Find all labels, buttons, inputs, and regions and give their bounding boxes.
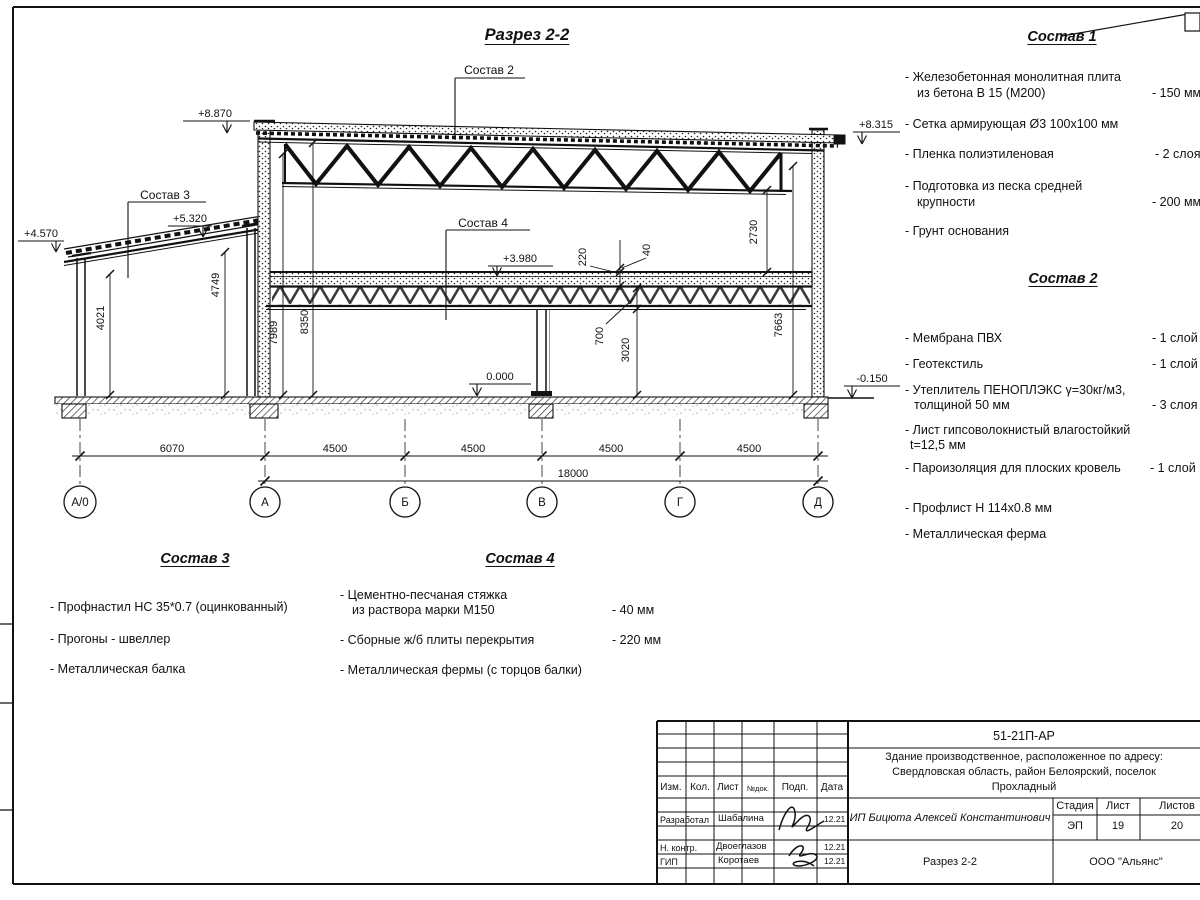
elevation-marks: +8.870 +8.315 +4.570 +5.320 +3.980 0.000… — [18, 108, 900, 398]
dim-7663: 7663 — [773, 313, 785, 337]
stage-value: ЭП — [1067, 820, 1083, 833]
sostav2-line: толщиной 50 мм — [914, 398, 1010, 412]
dim-4500-2: 4500 — [461, 443, 485, 455]
dim-2730: 2730 — [748, 220, 760, 244]
dim-700: 700 — [594, 327, 606, 345]
doc-code: 51-21П-АР — [993, 729, 1055, 743]
dim-7989: 7989 — [268, 321, 280, 345]
role-label: Разработал — [660, 815, 709, 825]
sheets-label: Листов — [1159, 800, 1195, 813]
main-building-structure — [254, 121, 874, 398]
sostav4-heading: Состав 4 — [485, 551, 554, 568]
sostav2-line: - Мембрана ПВХ — [905, 331, 1002, 345]
dim-220: 220 — [577, 248, 589, 266]
sostav3-heading: Состав 3 — [160, 551, 229, 568]
dim-4500-3: 4500 — [599, 443, 623, 455]
sostav1-line: крупности — [917, 195, 975, 209]
role-date: 12.21 — [824, 857, 845, 867]
sostav3-line: - Прогоны - швеллер — [50, 632, 170, 646]
sostav4-value: - 40 мм — [612, 603, 654, 617]
sostav2-line: - Утеплитель ПЕНОПЛЭКС γ=30кг/м3, — [905, 383, 1125, 397]
sostav3-line: - Профнастил НС 35*0.7 (оцинкованный) — [50, 600, 288, 614]
axis-bubbles: А/0 А Б В Г Д — [64, 486, 833, 518]
dim-4021: 4021 — [95, 306, 107, 330]
elev-annex-left: +4.570 — [24, 228, 58, 240]
axis-v: В — [538, 497, 546, 509]
drawing-linework: 6070 4500 4500 4500 4500 18000 4021 4749… — [0, 0, 1200, 900]
col-list: Лист — [717, 782, 739, 794]
dim-6070: 6070 — [160, 443, 184, 455]
sostav2-value: - 3 слоя — [1152, 398, 1197, 412]
dim-8350: 8350 — [299, 310, 311, 334]
col-izm: Изм. — [660, 782, 681, 794]
sheet-label: Лист — [1106, 800, 1130, 813]
sostav1-line: из бетона В 15 (М200) — [917, 86, 1045, 100]
view-name: Разрез 2-2 — [923, 856, 977, 869]
sostav4-line: из раствора марки М150 — [352, 603, 495, 617]
sostav1-line: - Подготовка из песка средней — [905, 179, 1082, 193]
elev-annex-right: +5.320 — [173, 213, 207, 225]
sostav4-line: - Сборные ж/б плиты перекрытия — [340, 633, 534, 647]
col-podp: Подп. — [782, 782, 809, 794]
elev-roof-right: +8.315 — [859, 119, 893, 131]
sostav1-value: - 150 мм — [1152, 86, 1200, 100]
axis-b: Б — [401, 497, 409, 509]
dim-3020: 3020 — [620, 338, 632, 362]
axis-a0: А/0 — [71, 497, 88, 509]
sostav2-line: - Металлическая ферма — [905, 527, 1046, 541]
sostav4-line: - Металлическая фермы (с торцов балки) — [340, 663, 582, 677]
stage-label: Стадия — [1056, 800, 1094, 813]
axis-a: А — [261, 497, 269, 509]
sostav4-line: - Цементно-песчаная стяжка — [340, 588, 507, 602]
axis-lines — [80, 419, 818, 487]
axis-d: Д — [814, 497, 822, 509]
dimension-texts: 6070 4500 4500 4500 4500 18000 4021 4749… — [95, 220, 785, 480]
designer-org: ИП Бицюта Алексей Константинович — [850, 812, 1051, 825]
sostav2-line: - Геотекстиль — [905, 357, 983, 371]
dim-40: 40 — [641, 244, 653, 256]
role-date: 12.21 — [824, 843, 845, 853]
object-line2: Свердловская область, район Белоярский, … — [892, 766, 1156, 779]
col-ndok: №док. — [747, 785, 769, 794]
sostav1-line: - Пленка полиэтиленовая — [905, 147, 1054, 161]
drawing-sheet: { "drawing": { "title": "Разрез 2-2", "l… — [0, 0, 1200, 900]
role-label: Н. контр. — [660, 843, 697, 853]
sostav2-line: - Лист гипсоволокнистый влагостойкий — [905, 423, 1130, 437]
sostav1-line: - Грунт основания — [905, 224, 1009, 238]
sostav2-value: - 1 слой — [1152, 357, 1198, 371]
role-name: Шабалина — [718, 814, 764, 825]
sheets-value: 20 — [1171, 820, 1183, 833]
sheet-value: 19 — [1112, 820, 1124, 833]
elev-floor0: 0.000 — [486, 371, 514, 383]
elev-grade: -0.150 — [856, 373, 887, 385]
annex-structure — [64, 215, 268, 396]
sostav1-value: - 2 слоя — [1155, 147, 1200, 161]
sostav2-value: - 1 слой — [1150, 461, 1196, 475]
sostav1-heading: Состав 1 — [1027, 29, 1096, 46]
dim-4749: 4749 — [210, 273, 222, 297]
role-name: Коротаев — [718, 856, 759, 867]
dim-4500-1: 4500 — [323, 443, 347, 455]
object-line3: Прохладный — [992, 781, 1057, 794]
dim-18000: 18000 — [558, 468, 589, 480]
sostav2-line: - Пароизоляция для плоских кровель — [905, 461, 1121, 475]
signature-2 — [789, 846, 817, 866]
sostav1-value: - 200 мм — [1152, 195, 1200, 209]
drawing-title: Разрез 2-2 — [485, 26, 570, 45]
sostav3-line: - Металлическая балка — [50, 662, 185, 676]
leader-sostav4: Состав 4 — [458, 216, 508, 230]
object-line1: Здание производственное, расположенное п… — [885, 751, 1163, 764]
col-kol: Кол. — [690, 782, 710, 794]
leader-sostav2: Состав 2 — [464, 63, 514, 77]
sostav2-heading: Состав 2 — [1028, 271, 1097, 288]
role-name: Двоеглазов — [716, 842, 767, 853]
foundation-and-ground — [55, 397, 828, 418]
sostav2-value: - 1 слой — [1152, 331, 1198, 345]
role-label: ГИП — [660, 857, 678, 867]
sostav1-line: - Железобетонная монолитная плита — [905, 70, 1121, 84]
leader-sostav3: Состав 3 — [140, 188, 190, 202]
dim-4500-4: 4500 — [737, 443, 761, 455]
sostav4-value: - 220 мм — [612, 633, 661, 647]
sostav2-line: - Профлист Н 114х0.8 мм — [905, 501, 1052, 515]
sostav2-line: t=12,5 мм — [910, 438, 966, 452]
col-data: Дата — [821, 782, 843, 794]
elev-floor2: +3.980 — [503, 253, 537, 265]
org-name: ООО "Альянс" — [1089, 856, 1163, 869]
sostav1-line: - Сетка армирующая Ø3 100x100 мм — [905, 117, 1118, 131]
axis-g: Г — [677, 497, 684, 509]
role-date: 12.21 — [824, 815, 845, 825]
elev-roof-left: +8.870 — [198, 108, 232, 120]
